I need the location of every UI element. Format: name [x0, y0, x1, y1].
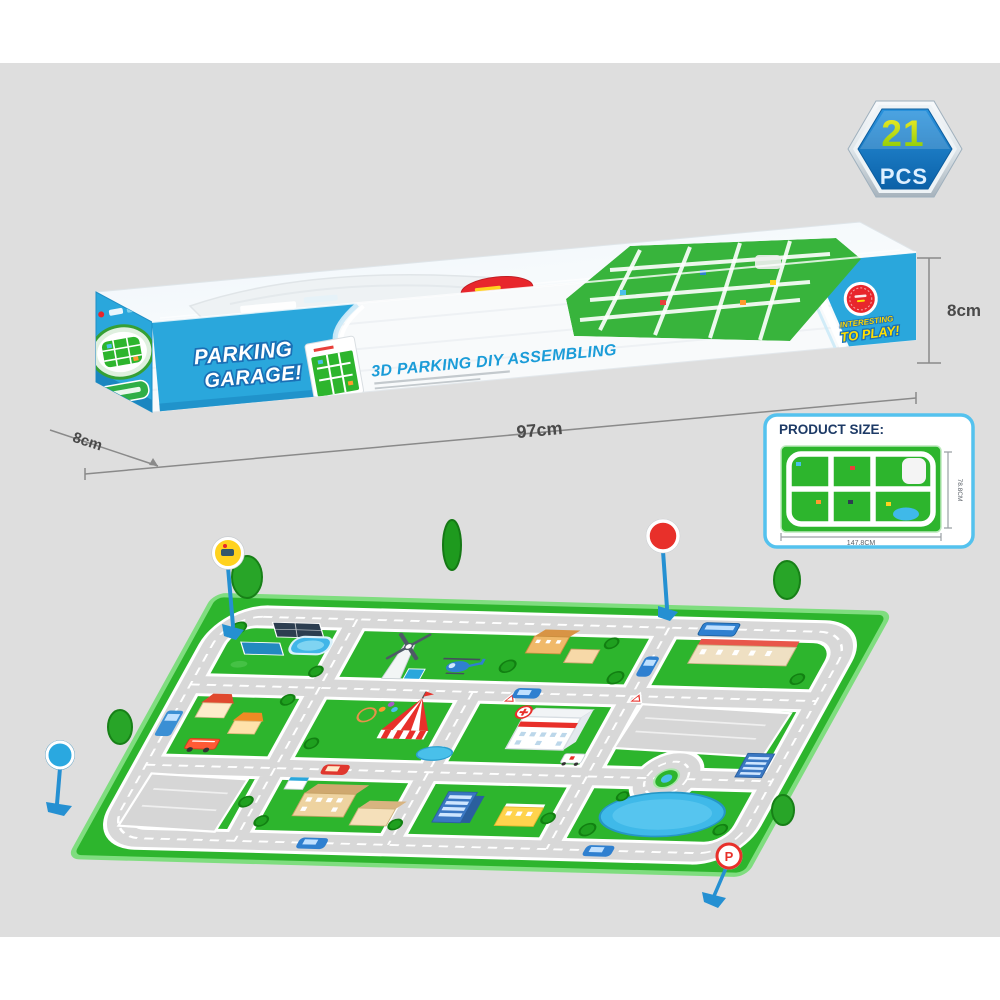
red-seal-icon — [844, 282, 878, 316]
card-width-label: 147.8CM — [847, 540, 876, 547]
card-height-label: 78.8CM — [956, 479, 963, 502]
badge-count: 21 — [881, 113, 924, 154]
card-title: PRODUCT SIZE: — [779, 422, 884, 437]
parking-lot — [611, 704, 794, 757]
bus-icon — [697, 623, 741, 637]
tree-icon — [774, 561, 800, 599]
length-label: 97cm — [516, 418, 564, 442]
product-photo: 21 PCS — [0, 0, 1000, 1000]
badge-unit: PCS — [880, 164, 928, 189]
playmat — [70, 595, 890, 875]
height-label: 8cm — [947, 301, 981, 320]
parking-sign-letter: P — [725, 849, 734, 864]
tree-icon — [443, 520, 461, 570]
mini-mat-sticker — [305, 336, 364, 402]
card-mat-image — [781, 446, 941, 532]
product-size-card: PRODUCT SIZE: 78.8CM 147.8CM — [765, 415, 973, 547]
tree-icon — [772, 795, 794, 825]
long-building — [688, 639, 800, 666]
tree-icon — [108, 710, 132, 744]
